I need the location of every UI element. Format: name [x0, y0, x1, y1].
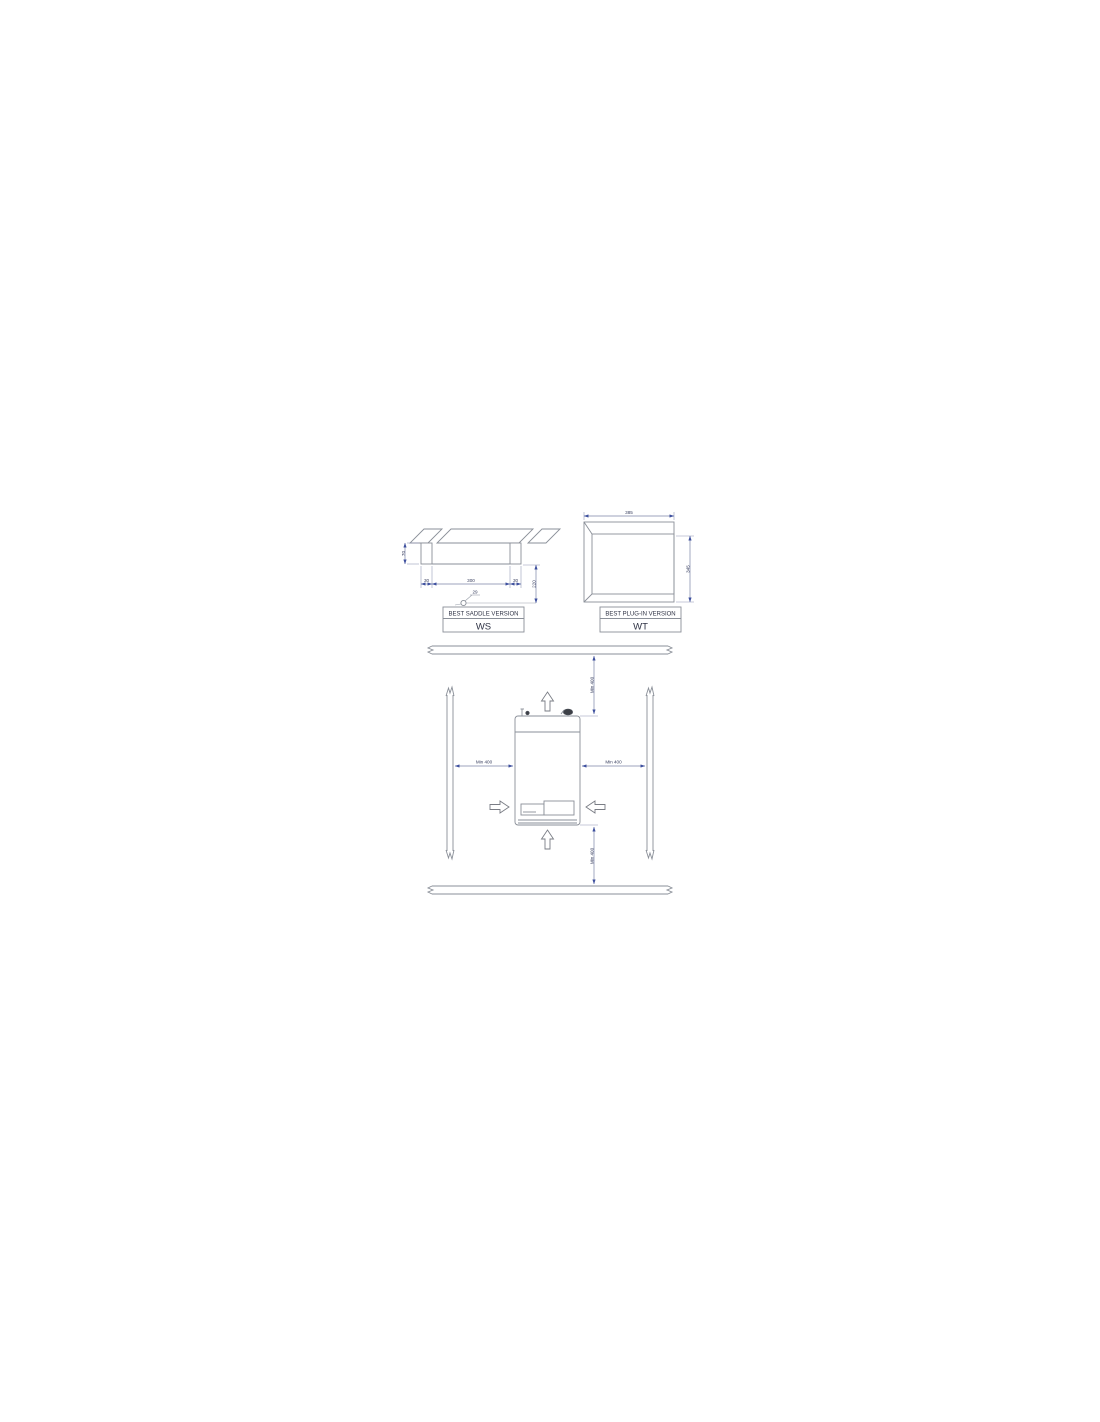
- ws-center-slab-top: [437, 529, 533, 543]
- ws-right-flap: [528, 529, 560, 543]
- ws-left-leg: [421, 543, 432, 564]
- wt-inner-opening: [592, 534, 674, 594]
- ws-label-box: BEST SADDLE VERSION WS: [443, 607, 524, 633]
- unit-top-valve-small: [526, 711, 529, 714]
- ws-dim-depth: 220: [523, 565, 540, 603]
- ws-left-flap: [410, 529, 442, 543]
- wt-label-box: BEST PLUG-IN VERSION WT: [600, 607, 681, 633]
- right-wall: [646, 687, 654, 859]
- unit-top-valve-large: [563, 709, 572, 715]
- left-wall-break-bottom: [446, 850, 454, 859]
- airflow-arrow-left: [586, 801, 605, 813]
- wt-dim-height-text: 345: [686, 565, 691, 573]
- clearance-view: Min 400 Min 400 Min 400 Min 400: [428, 646, 672, 894]
- ws-view: 70 30 300 30 220 29: [401, 529, 560, 633]
- ws-dim-bottom: 30 300 30: [421, 566, 521, 588]
- unit-front-view: [515, 709, 580, 825]
- clearance-dim-left-text: Min 400: [476, 759, 493, 764]
- ws-dim-left-height-text: 70: [401, 551, 406, 557]
- ws-dim-left-height: 70: [401, 543, 419, 564]
- bottom-wall: [428, 886, 672, 894]
- clearance-dim-right-text: Min 400: [605, 759, 622, 764]
- wt-label-code: WT: [633, 622, 648, 633]
- ws-leader-circle: [461, 600, 466, 605]
- wt-dim-height: 345: [676, 536, 694, 602]
- top-wall-break-right: [667, 646, 672, 654]
- left-wall: [446, 687, 454, 859]
- wt-dim-width: 385: [584, 510, 674, 520]
- airflow-arrow-up-bottom: [542, 830, 554, 849]
- ws-leader-text: 29: [472, 590, 478, 595]
- wt-view: 385 345 BEST PLUG-IN VERSION WT: [584, 510, 694, 632]
- clearance-dim-left: Min 400: [455, 759, 513, 766]
- ws-label-code: WS: [476, 622, 491, 633]
- ws-dim-depth-text: 220: [532, 580, 537, 588]
- ws-leader-29: 29: [455, 590, 536, 606]
- right-wall-break-top: [646, 687, 654, 696]
- wt-dim-width-text: 385: [625, 510, 633, 515]
- ws-right-leg: [510, 543, 521, 564]
- airflow-arrow-right: [490, 801, 509, 813]
- airflow-arrow-up-top: [542, 692, 554, 711]
- wt-label-title: BEST PLUG-IN VERSION: [605, 612, 675, 618]
- left-wall-break-top: [446, 687, 454, 696]
- drawing-canvas: 70 30 300 30 220 29: [0, 0, 1100, 1422]
- ws-dim-span-text: 300: [467, 578, 475, 583]
- clearance-dim-bottom-text: Min 400: [590, 847, 595, 864]
- unit-panel-left: [521, 804, 544, 815]
- top-wall-break-left: [428, 646, 433, 654]
- right-wall-break-bottom: [646, 850, 654, 859]
- technical-drawing-page: 70 30 300 30 220 29: [0, 0, 1100, 1422]
- clearance-dim-bottom: Min 400: [580, 825, 598, 884]
- ws-dim-slot-right-text: 30: [513, 578, 519, 583]
- ws-label-title: BEST SADDLE VERSION: [449, 612, 519, 618]
- bottom-wall-break-left: [428, 886, 433, 894]
- bottom-wall-break-right: [667, 886, 672, 894]
- ws-dim-slot-left-text: 30: [424, 578, 430, 583]
- clearance-dim-top: Min 400: [580, 656, 598, 716]
- top-wall: [428, 646, 672, 654]
- clearance-dim-top-text: Min 400: [590, 676, 595, 693]
- clearance-dim-right: Min 400: [582, 759, 645, 766]
- unit-panel-right: [544, 801, 574, 815]
